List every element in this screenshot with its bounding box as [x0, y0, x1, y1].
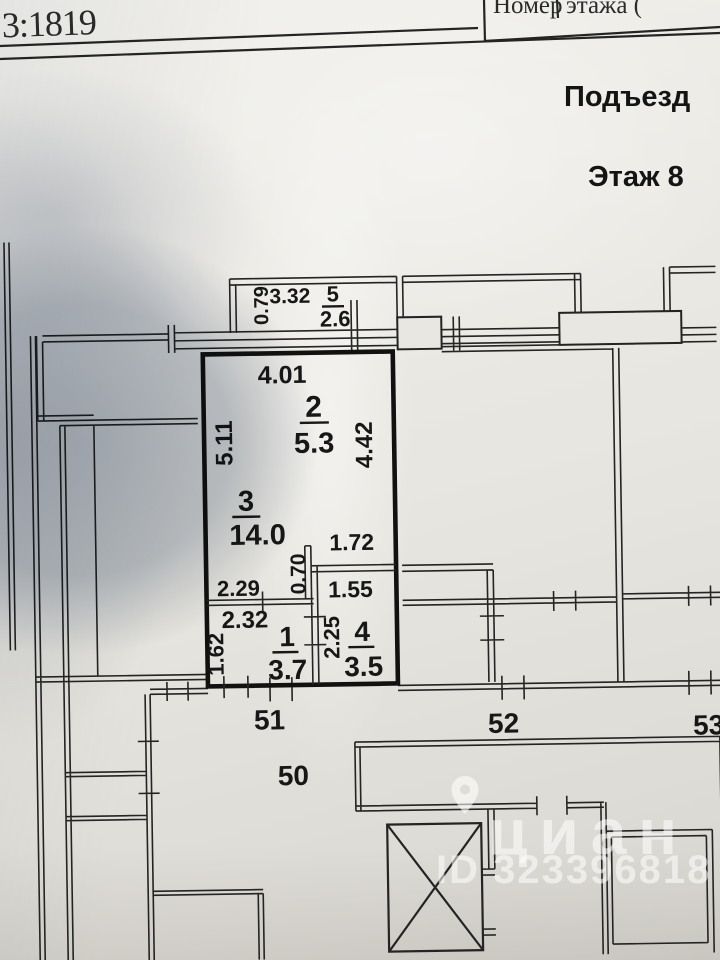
unit-50-label: 50	[278, 760, 310, 791]
right-neighbor-walls	[399, 342, 720, 685]
bath-area-label: 3.5	[344, 651, 383, 683]
unit-52-label: 52	[488, 708, 520, 739]
balcony-area-label: 2.6	[320, 306, 351, 331]
hall-number-label: 1	[279, 621, 295, 652]
floorplan-drawing: 3:1819 Номер этажа ( Подъезд Этаж 8	[0, 0, 720, 960]
bath-width-dim-label: 1.55	[328, 576, 373, 603]
living-number-label: 3	[238, 486, 255, 518]
hall-width-dim-label: 2.32	[221, 606, 268, 634]
living-area-label: 14.0	[229, 519, 286, 552]
unit-51-label: 51	[254, 704, 286, 735]
floorplan-photo: 3:1819 Номер этажа ( Подъезд Этаж 8	[0, 0, 720, 960]
document-header: 3:1819 Номер этажа ( Подъезд Этаж 8	[0, 0, 720, 193]
hall-passage-dim-label: 0.70	[287, 553, 311, 594]
watermark-id: ID 323396818	[436, 848, 711, 892]
kitchen-area-label: 5.3	[294, 427, 335, 460]
balcony-number-label: 5	[326, 281, 339, 306]
bath-niche-dim-label: 1.72	[329, 529, 374, 556]
table-cell-etazha: этажа (	[566, 0, 642, 19]
cadastral-number: 3:1819	[1, 2, 96, 45]
hall-area-label: 3.7	[268, 654, 307, 686]
bath-number-label: 4	[354, 616, 370, 647]
watermark: циан ID 323396818	[436, 776, 711, 892]
location-pin-icon	[452, 776, 479, 814]
kitchen-width-label: 4.01	[258, 361, 307, 390]
kitchen-left-dim-label: 5.11	[211, 420, 239, 466]
kitchen-right-dim-label: 4.42	[351, 421, 379, 468]
unit-53-label: 53	[693, 709, 720, 740]
kitchen-number-label: 2	[305, 391, 322, 424]
floor-label: Этаж 8	[588, 161, 684, 193]
hall-top-dim-label: 2.29	[217, 576, 260, 602]
table-cell-nomer: Номер	[493, 0, 563, 19]
balcony-width-label: 3.32	[269, 285, 310, 309]
hall-left-dim-label: 1.62	[203, 633, 229, 676]
bath-height-dim-label: 2.25	[319, 616, 345, 659]
entrance-label: Подъезд	[564, 81, 690, 113]
